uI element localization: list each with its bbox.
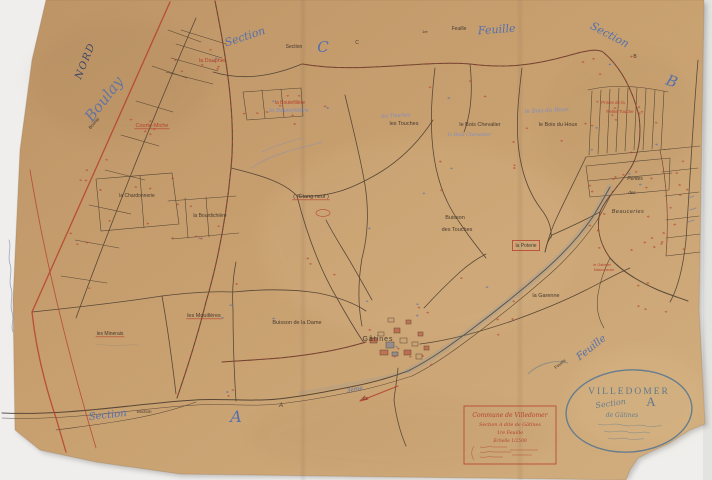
map-label-etang-neuf: ( l'Étang neuf ) [293, 193, 329, 200]
map-label-feuille-script-top: Feuille [476, 22, 516, 38]
map-label-le-bois-chevalier: le Bois Chevalier [459, 122, 500, 128]
cartouche-feuille-line: 1re Feuille [497, 430, 523, 436]
map-label-letter-a-large: A [228, 407, 242, 426]
map-label-feuille-print-top: Feuille [452, 26, 467, 32]
map-label-la-bourdichiere: la Bourdichière [193, 213, 227, 219]
map-label-buisson-touches-1: Buisson [445, 215, 465, 221]
scanned-cadastral-map: NORDBoulayBoulaySectionSectionCC1erFeuil… [0, 0, 712, 480]
stamp-section-letter: A [646, 394, 656, 409]
map-label-buisson-touches-2: des Touches [442, 227, 473, 233]
map-label-la-boutefiliere: la Boutefilière [275, 100, 306, 106]
map-canvas: NORDBoulayBoulaySectionSectionCC1erFeuil… [0, 0, 712, 480]
map-label-le-gabelet-1: le Gabelet [593, 263, 611, 267]
map-label-prises-2: Petite Touche [606, 109, 634, 114]
map-label-section-c-print: Section [286, 44, 303, 50]
map-label-les-touches: les Touches [390, 121, 419, 127]
map-label-la-boutefiliere-script: la Boutefilière [269, 107, 309, 114]
stamp-title: VILLEDOMER [588, 387, 670, 397]
map-label-courte-miche: Courte-Miche [135, 123, 168, 129]
stamp-gatines-line: de Gâtines [606, 412, 639, 419]
map-label-num-1er: 1er [422, 29, 428, 34]
map-label-la-dauphie: la Dauphie [199, 58, 225, 64]
map-label-gatines: Gâtines [362, 336, 393, 343]
map-label-beauceries: Beauceries [612, 209, 645, 215]
map-label-letter-c-small: C [355, 40, 359, 46]
map-label-buisson-de-la-dame: Buisson de la Dame [272, 320, 321, 326]
map-label-le-bois-chevalier-script: le Bois Chevalier [448, 132, 492, 138]
map-label-pentes: Pentes [627, 176, 643, 182]
map-label-le-bois-du-houx: le Bois du Houx [539, 122, 578, 128]
cartouche-section-line: Section A dite de Gâtines [479, 421, 541, 428]
map-label-section-bottom-print: Section [136, 409, 152, 414]
cartouche-commune-line: Commune de Villedomer [472, 412, 548, 419]
cartouche-echelle-line: Échelle 1/2500 [492, 438, 527, 444]
map-label-le-gabelet-2: Maisonneuve [594, 268, 614, 272]
map-label-les-mouilleres: les Mouillères [187, 313, 221, 319]
map-label-pentes-des: des [628, 190, 636, 195]
map-label-letter-c-large: C [317, 38, 329, 56]
map-label-la-garenne: la Garenne [532, 293, 559, 299]
map-label-la-chardonnerie: la Chardonnerie [119, 193, 155, 199]
map-label-les-minerais: les Minerais [97, 331, 124, 337]
map-label-letter-a-small: A [278, 403, 283, 409]
map-label-prises-1: Prises de la [601, 100, 625, 105]
map-label-la-poterie: la Poterie [515, 243, 536, 249]
map-label-num-27: 27 [362, 396, 368, 401]
